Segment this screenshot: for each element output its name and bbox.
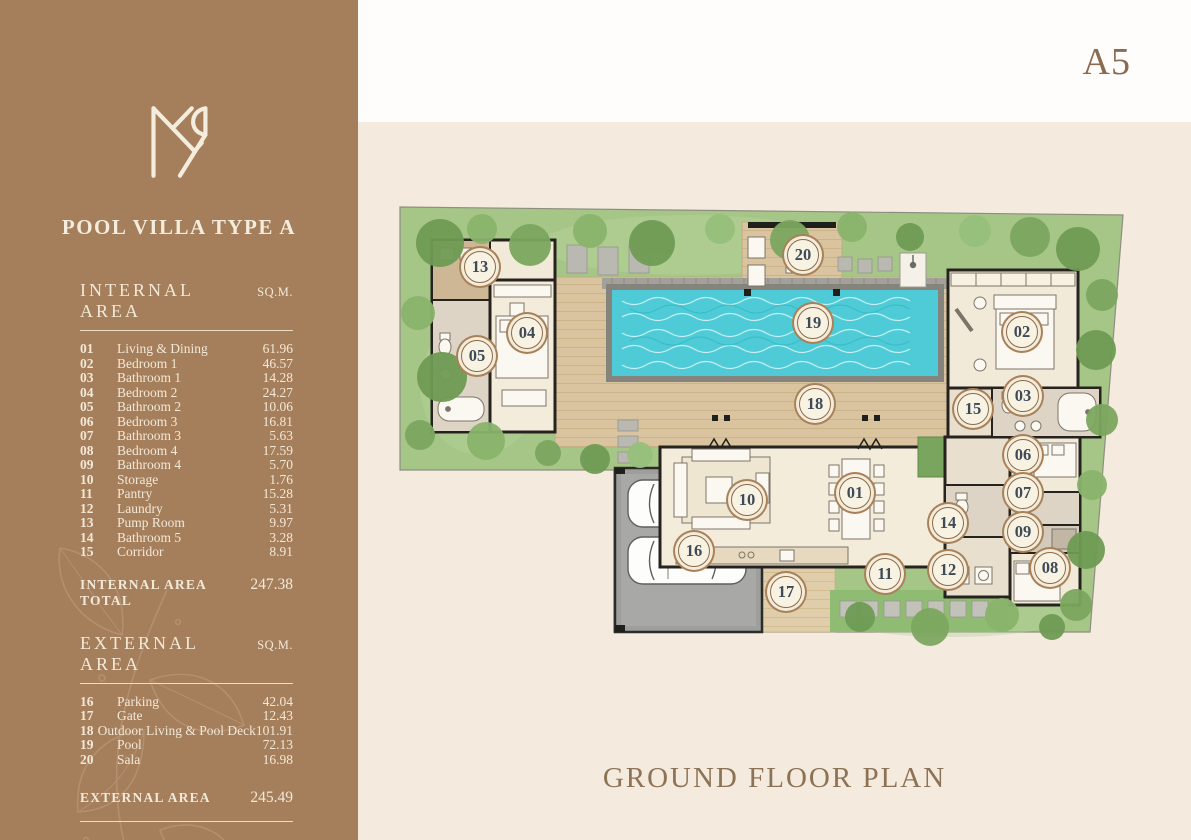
area-row: 18Outdoor Living & Pool Deck101.91: [80, 724, 293, 739]
area-row-nm: Bedroom 1: [117, 357, 239, 372]
area-row-ar: 5.63: [239, 429, 293, 444]
area-row-nm: Living & Dining: [117, 342, 239, 357]
area-row-ar: 17.59: [239, 444, 293, 459]
room-marker-20: 20: [787, 239, 819, 271]
area-row: 17Gate12.43: [80, 709, 293, 724]
area-row-no: 12: [80, 502, 117, 517]
room-marker-06: 06: [1007, 439, 1039, 471]
area-row-ar: 101.91: [256, 724, 293, 739]
area-row: 07Bathroom 35.63: [80, 429, 293, 444]
area-row: 14Bathroom 53.28: [80, 531, 293, 546]
grand-total-divider: [80, 821, 293, 822]
room-marker-09: 09: [1007, 516, 1039, 548]
area-row-ar: 5.70: [239, 458, 293, 473]
brand-logo-icon: [138, 98, 220, 186]
plan-caption: GROUND FLOOR PLAN: [358, 762, 1191, 795]
area-row-ar: 46.57: [239, 357, 293, 372]
area-row-ar: 10.06: [239, 400, 293, 415]
room-marker-10: 10: [731, 484, 763, 516]
brand-block: POOL VILLA TYPE A: [0, 98, 358, 240]
area-row: 11Pantry15.28: [80, 487, 293, 502]
room-marker-02: 02: [1006, 316, 1038, 348]
area-row-no: 13: [80, 516, 117, 531]
area-row-no: 07: [80, 429, 117, 444]
area-row-no: 20: [80, 753, 117, 768]
area-row-ar: 12.43: [239, 709, 293, 724]
area-row: 15Corridor8.91: [80, 545, 293, 560]
external-area-title: EXTERNAL AREA: [80, 633, 257, 675]
area-row-nm: Pool: [117, 738, 239, 753]
plan-panel: A5: [358, 0, 1191, 840]
room-marker-08: 08: [1034, 552, 1066, 584]
area-row: 19Pool72.13: [80, 738, 293, 753]
area-tables: INTERNAL AREA SQ.M. 01Living & Dining61.…: [80, 280, 293, 840]
room-marker-19: 19: [797, 307, 829, 339]
area-row-nm: Laundry: [117, 502, 239, 517]
internal-area-unit: SQ.M.: [257, 285, 293, 300]
room-marker-03: 03: [1007, 380, 1039, 412]
area-row: 01Living & Dining61.96: [80, 342, 293, 357]
area-row-no: 19: [80, 738, 117, 753]
external-area-header: EXTERNAL AREA SQ.M.: [80, 633, 293, 684]
area-row-nm: Pantry: [117, 487, 239, 502]
area-row-nm: Storage: [117, 473, 239, 488]
room-marker-07: 07: [1007, 477, 1039, 509]
area-row-nm: Bedroom 4: [117, 444, 239, 459]
external-area-unit: SQ.M.: [257, 638, 293, 653]
area-row-no: 14: [80, 531, 117, 546]
room-marker-15: 15: [957, 393, 989, 425]
area-row-no: 09: [80, 458, 117, 473]
area-row: 02Bedroom 146.57: [80, 357, 293, 372]
room-marker-14: 14: [932, 507, 964, 539]
external-total-value: 245.49: [250, 789, 293, 807]
room-marker-17: 17: [770, 576, 802, 608]
area-row-no: 08: [80, 444, 117, 459]
area-row-no: 06: [80, 415, 117, 430]
area-row-ar: 61.96: [239, 342, 293, 357]
area-row: 20Sala16.98: [80, 753, 293, 768]
area-row-ar: 9.97: [239, 516, 293, 531]
floor-plan: 0102030405060708091011121314151617181920: [390, 185, 1135, 665]
area-row-no: 02: [80, 357, 117, 372]
room-marker-04: 04: [511, 317, 543, 349]
area-row: 03Bathroom 114.28: [80, 371, 293, 386]
area-row-ar: 16.81: [239, 415, 293, 430]
unit-code: A5: [1083, 40, 1131, 84]
room-marker-13: 13: [464, 251, 496, 283]
external-total-row: EXTERNAL AREA 245.49: [80, 789, 293, 807]
area-row-no: 04: [80, 386, 117, 401]
area-row-nm: Bathroom 5: [117, 531, 239, 546]
internal-total-row: INTERNAL AREA TOTAL 247.38: [80, 576, 293, 609]
villa-title: POOL VILLA TYPE A: [0, 215, 358, 240]
area-row: 09Bathroom 45.70: [80, 458, 293, 473]
area-row: 13Pump Room9.97: [80, 516, 293, 531]
area-row-ar: 5.31: [239, 502, 293, 517]
area-row-ar: 15.28: [239, 487, 293, 502]
internal-area-header: INTERNAL AREA SQ.M.: [80, 280, 293, 331]
sidebar: POOL VILLA TYPE A INTERNAL AREA SQ.M. 01…: [0, 0, 358, 840]
internal-area-title: INTERNAL AREA: [80, 280, 257, 322]
area-row-no: 16: [80, 695, 117, 710]
area-row-ar: 24.27: [239, 386, 293, 401]
area-row: 05Bathroom 210.06: [80, 400, 293, 415]
area-row-no: 01: [80, 342, 117, 357]
external-area-rows: 16Parking42.0417Gate12.4318Outdoor Livin…: [80, 695, 293, 768]
area-row-nm: Sala: [117, 753, 239, 768]
area-row-ar: 16.98: [239, 753, 293, 768]
area-row-no: 18: [80, 724, 98, 739]
area-row-no: 15: [80, 545, 117, 560]
area-row: 08Bedroom 417.59: [80, 444, 293, 459]
area-row-no: 10: [80, 473, 117, 488]
area-row-nm: Bedroom 2: [117, 386, 239, 401]
area-row-ar: 14.28: [239, 371, 293, 386]
area-row-nm: Corridor: [117, 545, 239, 560]
room-marker-18: 18: [799, 388, 831, 420]
area-row-no: 17: [80, 709, 117, 724]
room-marker-01: 01: [839, 477, 871, 509]
area-row-no: 11: [80, 487, 117, 502]
area-row-nm: Bathroom 3: [117, 429, 239, 444]
area-row-ar: 72.13: [239, 738, 293, 753]
area-row-nm: Bathroom 2: [117, 400, 239, 415]
area-row-nm: Gate: [117, 709, 239, 724]
room-markers: 0102030405060708091011121314151617181920: [390, 185, 1135, 665]
area-row-ar: 3.28: [239, 531, 293, 546]
area-row: 12Laundry5.31: [80, 502, 293, 517]
area-row-no: 05: [80, 400, 117, 415]
area-row-nm: Bathroom 1: [117, 371, 239, 386]
area-row-nm: Parking: [117, 695, 239, 710]
internal-area-rows: 01Living & Dining61.9602Bedroom 146.5703…: [80, 342, 293, 560]
area-row-ar: 8.91: [239, 545, 293, 560]
area-row-nm: Bathroom 4: [117, 458, 239, 473]
room-marker-11: 11: [869, 558, 901, 590]
top-white-band: [358, 0, 1191, 122]
room-marker-05: 05: [461, 340, 493, 372]
area-row-nm: Pump Room: [117, 516, 239, 531]
room-marker-16: 16: [678, 535, 710, 567]
area-row-ar: 1.76: [239, 473, 293, 488]
external-total-label: EXTERNAL AREA: [80, 790, 211, 806]
area-row: 06Bedroom 316.81: [80, 415, 293, 430]
area-row-nm: Bedroom 3: [117, 415, 239, 430]
internal-total-label: INTERNAL AREA TOTAL: [80, 577, 250, 609]
area-row: 10Storage1.76: [80, 473, 293, 488]
area-row-no: 03: [80, 371, 117, 386]
area-row-ar: 42.04: [239, 695, 293, 710]
area-row-nm: Outdoor Living & Pool Deck: [98, 724, 256, 739]
area-row: 16Parking42.04: [80, 695, 293, 710]
internal-total-value: 247.38: [250, 576, 293, 594]
area-row: 04Bedroom 224.27: [80, 386, 293, 401]
room-marker-12: 12: [932, 554, 964, 586]
brochure-page: POOL VILLA TYPE A INTERNAL AREA SQ.M. 01…: [0, 0, 1191, 840]
